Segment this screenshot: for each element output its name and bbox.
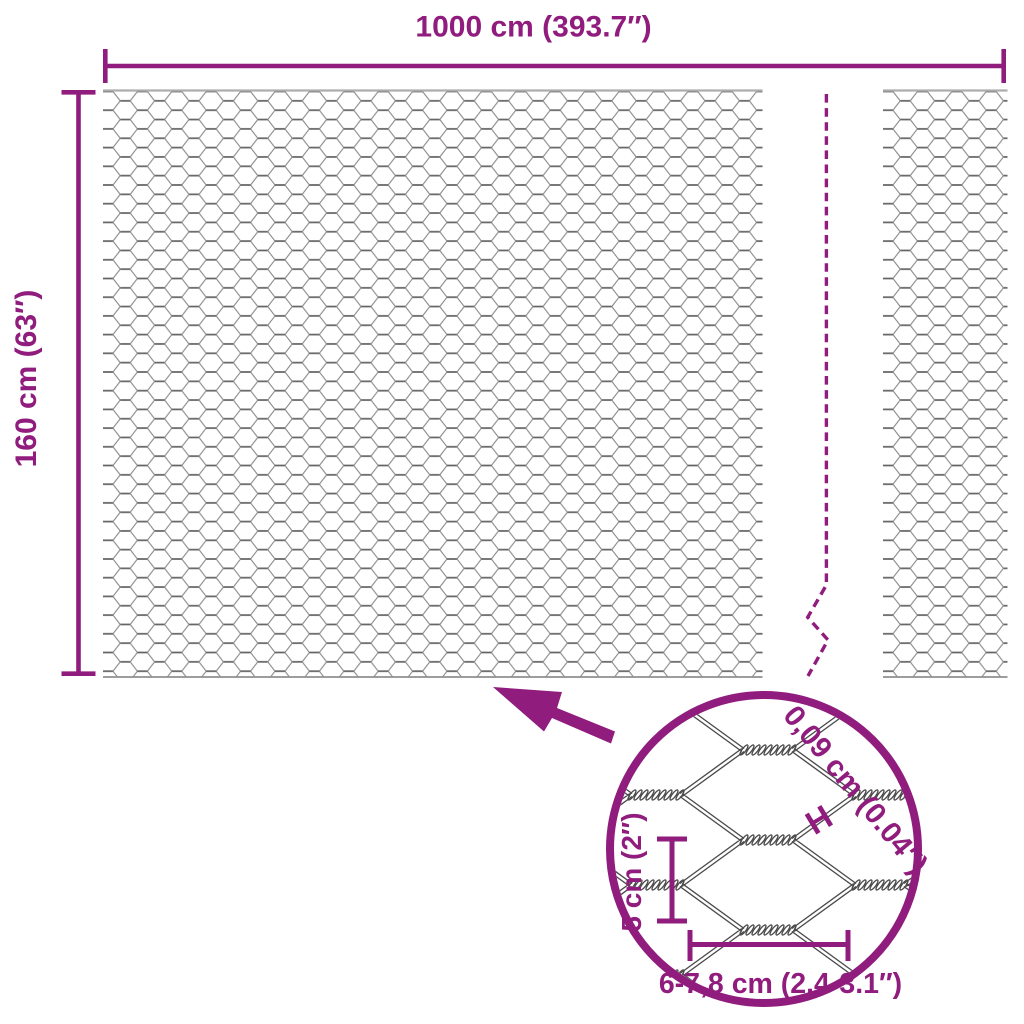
svg-text:1000 cm (393.7″): 1000 cm (393.7″) bbox=[415, 11, 651, 44]
svg-text:160 cm (63″): 160 cm (63″) bbox=[10, 290, 43, 468]
svg-text:5 cm (2″): 5 cm (2″) bbox=[616, 812, 647, 931]
svg-text:H: H bbox=[799, 798, 838, 842]
svg-text:6-7,8 cm (2.4-3.1″): 6-7,8 cm (2.4-3.1″) bbox=[659, 968, 902, 1000]
